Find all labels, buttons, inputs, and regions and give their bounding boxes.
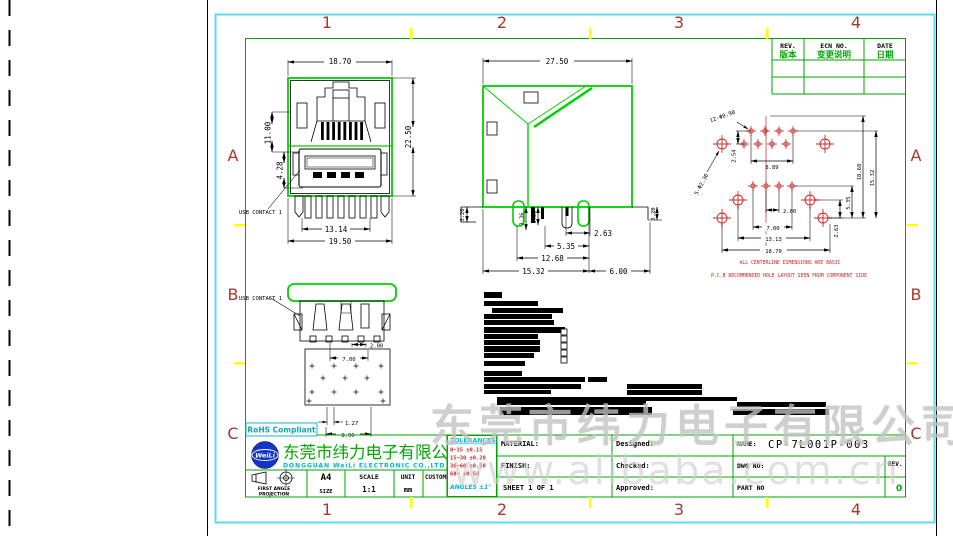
side-shield-holes [487,92,538,193]
approved-label: Approved: [616,484,654,492]
pcb-layout-view: 12-Φ0.90 5-Φ2.30 2.54 8.89 2.00 7.00 13.… [694,110,878,279]
dim-pcb-post-width: 13.13 [765,237,782,243]
green-drawing-frame [246,39,906,498]
unit-label: UNIT [401,474,416,481]
dim-rear-hole-pitch: 1.27 [345,421,358,427]
tolerance-angles: ANGLES ±1° [449,484,491,491]
notes-block [484,292,829,415]
first-angle-projection-icon [252,469,295,487]
part-no-label: PART NO [737,484,764,492]
zone-row-c-right: C [910,424,921,443]
tolerance-row-1: 0~15 ±0.15 [450,448,482,454]
dwg-no-label: DWG NO: [737,462,764,470]
zone-col-1-top: 1 [322,13,332,32]
logo-text: WeiLi [255,452,276,460]
rj45-port [297,82,385,142]
dim-side-left-tail: 3.20 [460,208,466,221]
dim-pcb-row-pitch: 2.54 [732,149,738,163]
projection-caption-1: FIRST ANGLE [258,486,290,492]
notes-vertical-callout-boxes [561,329,567,363]
rev-col-header: REV. [780,42,796,50]
zone-col-4-top: 4 [851,13,861,32]
rear-body [294,301,390,342]
ecn-col-header-cn: 变更说明 [817,50,852,61]
pcb-mount-holes [713,135,834,227]
rev-value: 0 [896,484,902,494]
tolerance-row-3: 30~60 ±0.30 [450,464,486,470]
dim-front-usb-center: 4.28 [276,161,285,180]
dim-side-pin-a: 3.36 [520,212,526,225]
dim-side-pin-span: 15.32 [522,267,545,276]
usb-port [293,149,387,187]
sheet-size-label: SIZE [319,489,332,495]
rj45-contacts [321,122,363,140]
pcb-note-2: P.C.B RECOMMENDED HOLE LAYOUT SEEN FROM … [711,273,867,279]
front-legs [295,196,389,218]
rev-col-header-cn: 版本 [778,50,797,61]
name-label: NAME: [737,440,757,448]
designed-label: Designed: [616,440,654,448]
tolerances-box: TOLERANCES: 0~15 ±0.15 15~30 ±0.20 30~60… [448,436,499,497]
scale-value: 1:1 [362,485,376,494]
zone-row-a-left: A [228,146,239,165]
checked-label: Checked: [616,462,650,470]
drawing-name-value: CP-7L001P-003 [768,439,870,451]
rear-view: 2.00 7.00 1.27 8.90 USB CONTACT 1 [239,284,396,439]
dim-front-top-width: 18.70 [329,57,352,66]
zone-col-2-top: 2 [497,13,507,32]
dim-pcb-v-rear: 2.63 [834,224,840,237]
zone-col-2-bottom: 2 [497,500,507,519]
tolerance-row-2: 15~30 ±0.20 [450,456,486,462]
callout-big-holes: 5-Φ2.30 [694,173,710,196]
dim-front-total-height: 22.50 [404,125,413,148]
company-name-cn: 东莞市纬力电子有限公司 [283,443,465,462]
side-view: 27.50 3.36 3.20 3.20 3.20 2.63 5.35 12.6… [460,57,662,277]
zone-col-4-bottom: 4 [851,500,861,519]
date-col-header-cn: 日期 [876,50,894,61]
zone-row-c-left: C [227,424,238,443]
revision-table: REV. ECN NO. DATE 版本 变更说明 日期 [772,39,906,95]
finish-label: FINISH: [501,462,531,470]
rear-plate-holes [307,364,386,404]
zone-col-3-bottom: 3 [674,500,684,519]
material-label: MATERIAL: [501,440,539,448]
dim-side-front: 6.00 [609,267,628,276]
sheet-label: SHEET 1 OF 1 [503,484,554,492]
tolerance-row-4: 60~ ±0.50 [450,472,479,478]
zone-col-1-bottom: 1 [322,500,332,519]
dim-side-pin-b: 3.20 [532,210,538,223]
dim-side-right-tail: 3.20 [651,207,657,220]
date-col-header: DATE [877,42,893,50]
zone-row-b-left: B [228,285,239,304]
dim-pcb-total-width: 18.70 [765,249,782,255]
pcb-small-holes [739,126,798,191]
cad-drawing: 1 2 3 4 1 2 3 4 A B C A B C REV. ECN NO.… [0,0,953,536]
front-usb-contact-label: USB CONTACT 1 [239,210,282,216]
zone-col-3-top: 3 [674,13,684,32]
callout-small-holes: 12-Φ0.90 [709,110,736,125]
dim-side-post-span: 12.68 [541,254,564,263]
dim-front-rj45-center: 11.00 [264,121,273,144]
dim-front-base-width: 19.50 [329,237,352,246]
dim-side-post-front: 5.35 [557,242,575,251]
company-name-en: DONGGUAN WeiLi ELECTRONIC CO.,LTD [283,463,445,470]
tolerances-title: TOLERANCES: [450,438,498,445]
dim-side-depth: 27.50 [546,57,569,66]
dim-rear-contact-span: 7.00 [342,357,355,363]
rohs-badge-label: RoHS Compliant [247,426,316,435]
zone-row-a-right: A [911,146,922,165]
dim-pcb-usb-span: 7.00 [766,226,779,232]
scale-label: SCALE [359,473,379,481]
projection-caption-2: PROJECTION [259,492,290,498]
sheet-size-value: A4 [321,473,332,483]
unit-value: mm [404,486,412,494]
dim-pcb-row-width: 8.89 [765,165,778,171]
front-view: 18.70 22.50 11.00 4.28 USB CONTACT 1 13.… [239,57,416,247]
dim-pcb-v-post: 5.35 [846,196,852,209]
pcb-note-1: ALL CENTERLINE DIMENSIONS ARE BASIC [739,260,840,266]
dim-pcb-v-inner: 18.68 [857,164,863,181]
dim-rear-hole-span: 8.90 [341,433,354,439]
dim-rear-contact-pitch: 2.00 [370,344,383,350]
ecn-col-header: ECN NO. [820,42,847,50]
dim-pcb-v-outer: 15.32 [870,170,876,187]
side-post-rear [578,201,589,226]
company-logo: WeiLi [252,442,279,469]
drawing-page: 1 2 3 4 1 2 3 4 A B C A B C REV. ECN NO.… [0,0,953,536]
side-right-tab [632,207,648,220]
rev-label: REV. [888,461,902,468]
dim-pcb-usb-pitch: 2.00 [783,209,796,215]
rear-shield-top [288,284,396,301]
usb-contacts [313,172,364,178]
zone-row-b-right: B [911,285,922,304]
dim-side-rear: 2.63 [594,229,612,238]
dim-front-leg-span: 13.14 [325,225,348,234]
